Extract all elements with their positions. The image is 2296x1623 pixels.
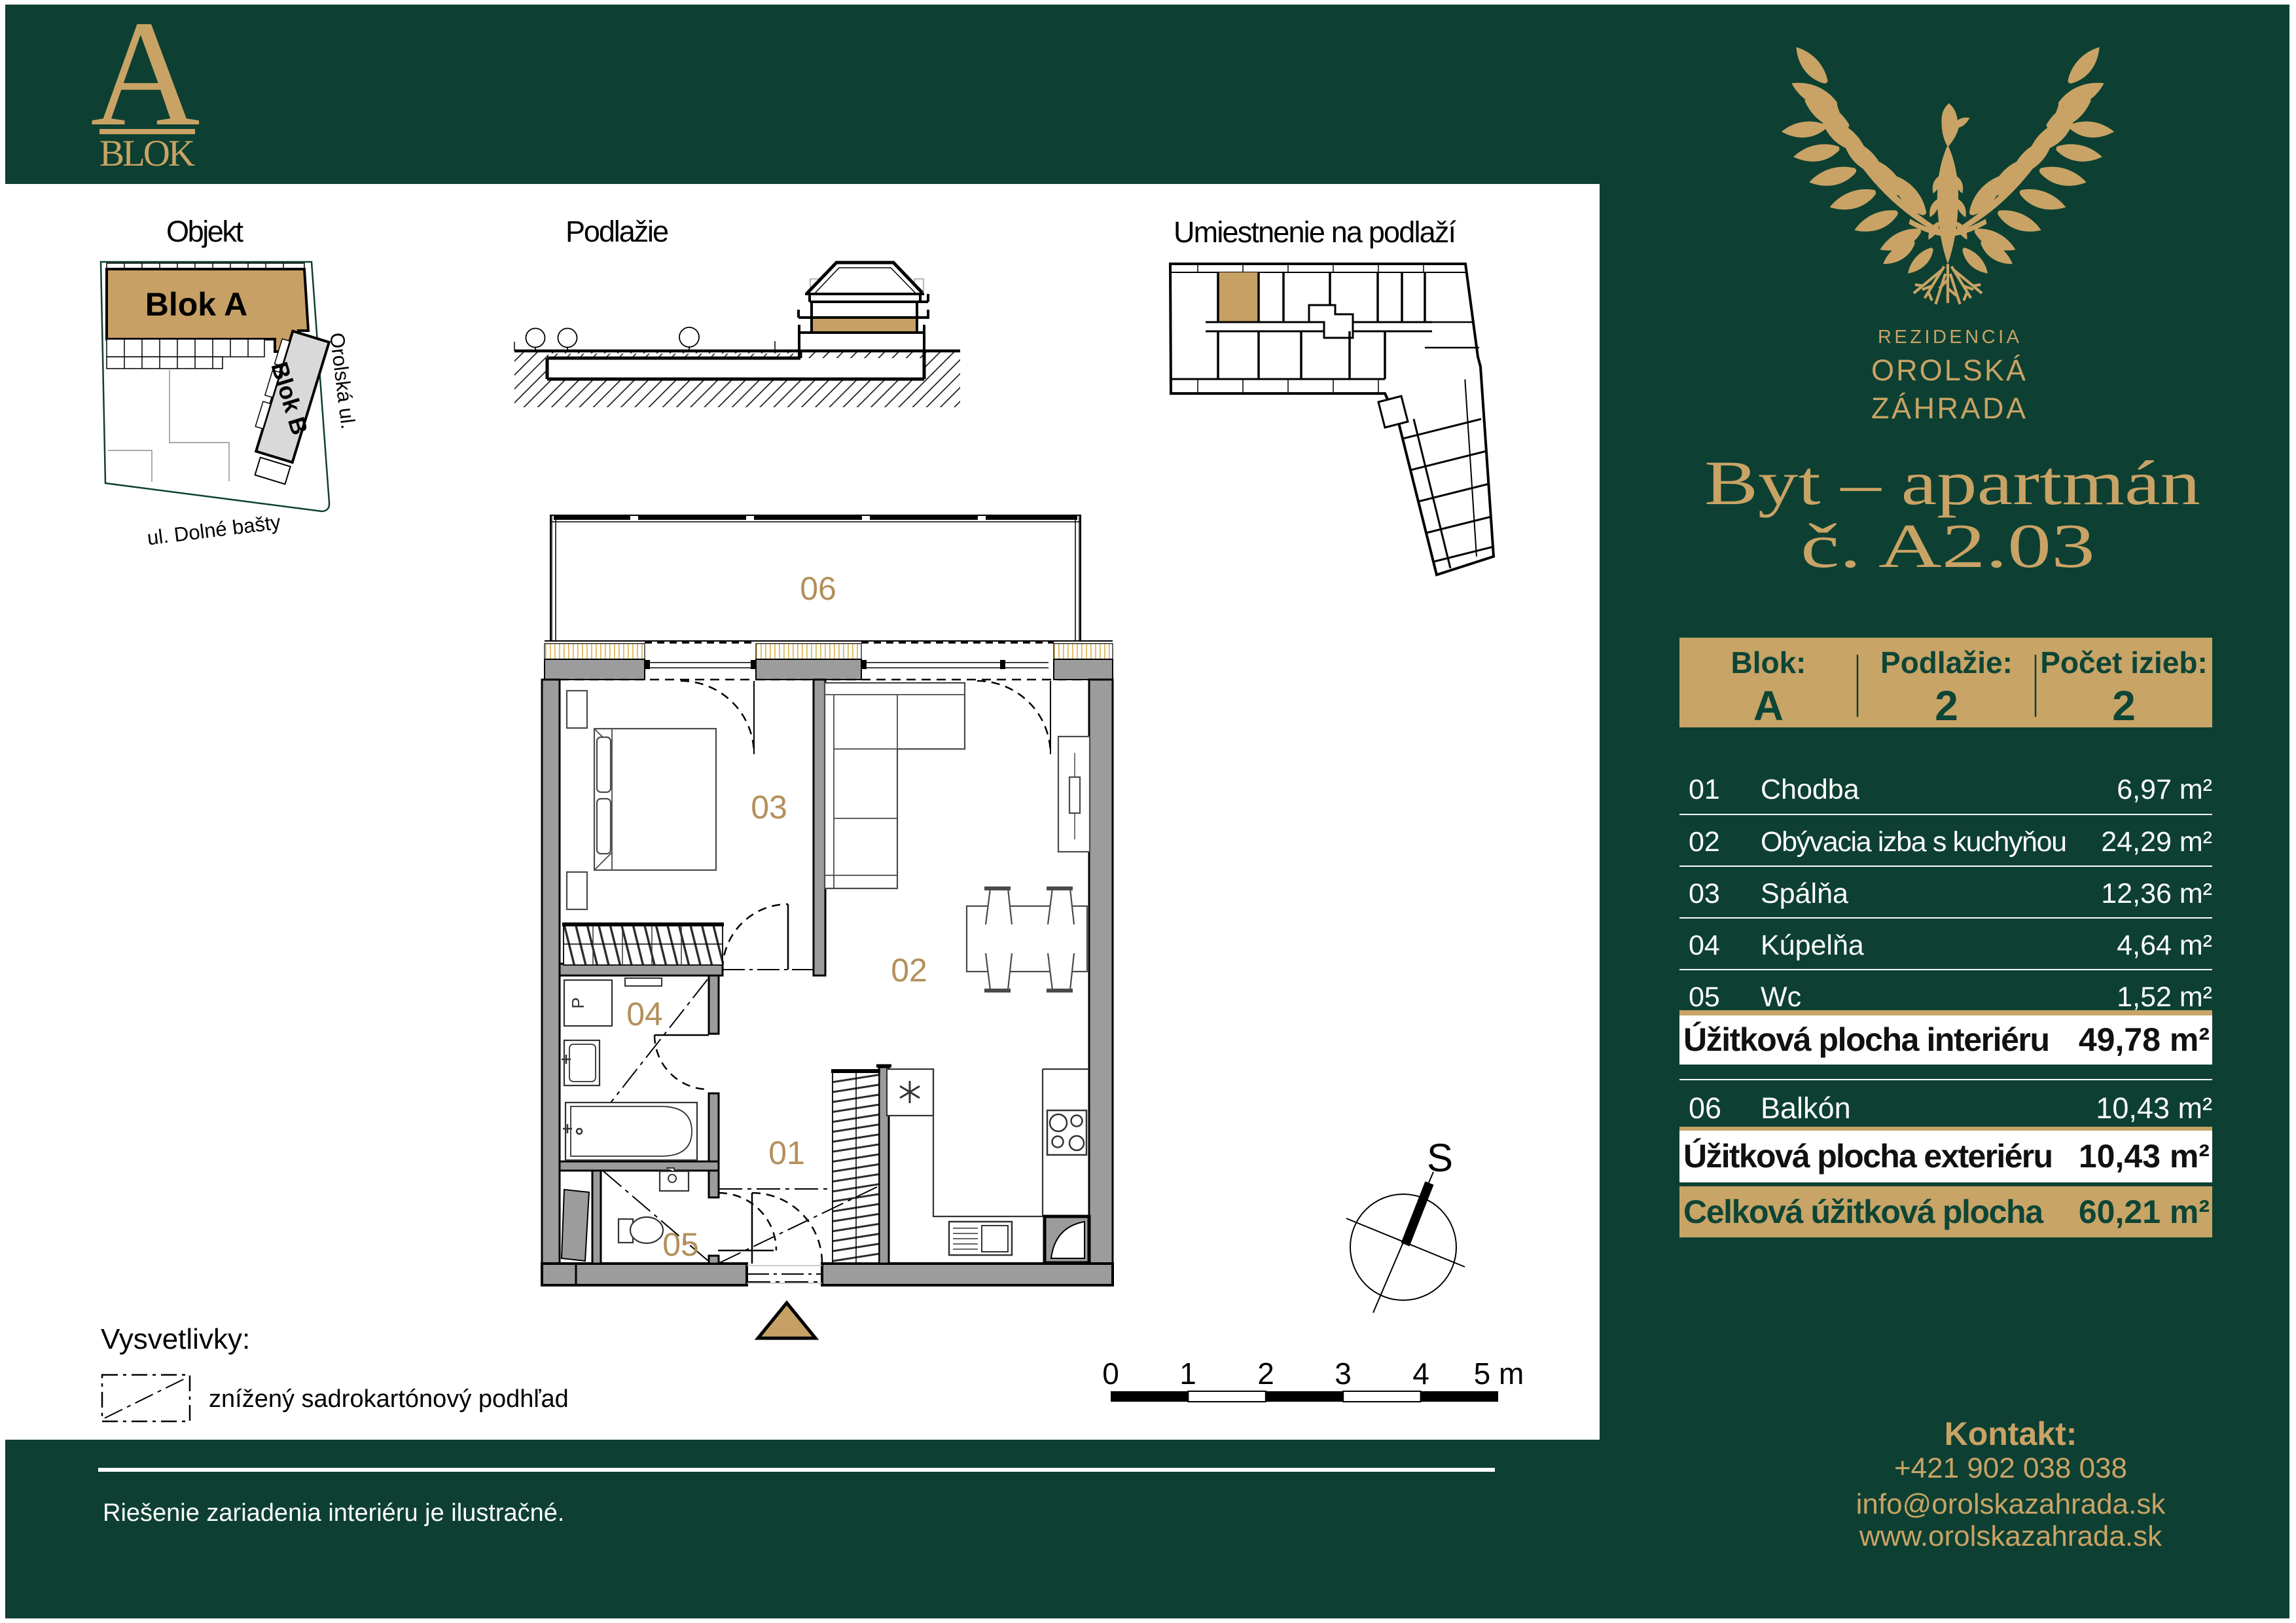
svg-text:06: 06 xyxy=(1689,1091,1721,1125)
svg-text:2: 2 xyxy=(1935,682,1958,729)
svg-text:01: 01 xyxy=(1689,774,1720,805)
svg-text:S: S xyxy=(1427,1136,1453,1180)
svg-text:Blok A: Blok A xyxy=(145,286,248,323)
svg-text:znížený sadrokartónový podhľad: znížený sadrokartónový podhľad xyxy=(209,1385,569,1413)
svg-text:P: P xyxy=(568,997,588,1008)
svg-text:03: 03 xyxy=(751,789,787,826)
svg-text:03: 03 xyxy=(1689,878,1720,909)
svg-text:Vysvetlivky:: Vysvetlivky: xyxy=(101,1323,250,1355)
svg-text:04: 04 xyxy=(626,996,663,1032)
svg-text:Objekt: Objekt xyxy=(166,215,243,248)
svg-text:BLOK: BLOK xyxy=(99,133,195,174)
svg-text:2: 2 xyxy=(1257,1357,1274,1391)
svg-text:Balkón: Balkón xyxy=(1761,1091,1851,1125)
svg-text:www.orolskazahrada.sk: www.orolskazahrada.sk xyxy=(1859,1520,2162,1552)
svg-text:Umiestnenie na podlaží: Umiestnenie na podlaží xyxy=(1174,215,1456,249)
svg-text:A: A xyxy=(1753,682,1784,729)
svg-text:info@orolskazahrada.sk: info@orolskazahrada.sk xyxy=(1856,1488,2166,1520)
svg-text:10,43 m²: 10,43 m² xyxy=(2079,1138,2210,1175)
svg-text:10,43 m²: 10,43 m² xyxy=(2096,1091,2212,1125)
svg-text:Kontakt:: Kontakt: xyxy=(1945,1415,2077,1452)
svg-text:5 m: 5 m xyxy=(1474,1357,1524,1391)
svg-text:Blok:: Blok: xyxy=(1731,646,1806,680)
svg-text:0: 0 xyxy=(1102,1357,1119,1391)
svg-text:60,21 m²: 60,21 m² xyxy=(2079,1194,2210,1230)
svg-text:02: 02 xyxy=(891,952,927,989)
svg-text:Celková úžitková plocha: Celková úžitková plocha xyxy=(1683,1194,2044,1230)
svg-text:Byt – apartmán: Byt – apartmán xyxy=(1704,448,2200,518)
svg-text:Wc: Wc xyxy=(1761,981,1801,1013)
svg-text:1: 1 xyxy=(1179,1357,1196,1391)
svg-text:ZÁHRADA: ZÁHRADA xyxy=(1871,392,2026,425)
svg-text:Úžitková plocha exteriéru: Úžitková plocha exteriéru xyxy=(1683,1138,2053,1175)
svg-text:12,36 m²: 12,36 m² xyxy=(2101,878,2212,909)
svg-text:4,64 m²: 4,64 m² xyxy=(2117,930,2212,961)
svg-text:č. A2.03: č. A2.03 xyxy=(1801,511,2095,581)
svg-text:3: 3 xyxy=(1335,1357,1352,1391)
svg-text:Spálňa: Spálňa xyxy=(1761,878,1848,909)
svg-text:01: 01 xyxy=(768,1135,805,1171)
svg-text:Riešenie zariadenia interiéru: Riešenie zariadenia interiéru je ilustra… xyxy=(103,1499,565,1527)
svg-text:24,29 m²: 24,29 m² xyxy=(2101,826,2212,858)
svg-text:04: 04 xyxy=(1689,930,1720,961)
svg-text:2: 2 xyxy=(2112,682,2136,729)
svg-text:Kúpelňa: Kúpelňa xyxy=(1761,930,1864,961)
svg-text:1,52 m²: 1,52 m² xyxy=(2117,981,2212,1013)
svg-text:6,97 m²: 6,97 m² xyxy=(2117,774,2212,805)
svg-text:02: 02 xyxy=(1689,826,1720,858)
svg-text:Úžitková plocha interiéru: Úžitková plocha interiéru xyxy=(1683,1021,2050,1058)
svg-text:49,78 m²: 49,78 m² xyxy=(2079,1021,2210,1058)
svg-text:05: 05 xyxy=(662,1226,699,1263)
svg-text:+421 902 038 038: +421 902 038 038 xyxy=(1894,1452,2127,1484)
svg-text:Podlažie: Podlažie xyxy=(565,215,669,248)
svg-text:05: 05 xyxy=(1689,981,1720,1013)
svg-text:Chodba: Chodba xyxy=(1761,774,1859,805)
svg-text:Počet izieb:: Počet izieb: xyxy=(2040,646,2208,680)
svg-text:Obývacia izba s kuchyňou: Obývacia izba s kuchyňou xyxy=(1761,826,2067,858)
svg-text:4: 4 xyxy=(1412,1357,1429,1391)
svg-text:06: 06 xyxy=(800,570,836,607)
svg-text:Podlažie:: Podlažie: xyxy=(1880,646,2013,680)
